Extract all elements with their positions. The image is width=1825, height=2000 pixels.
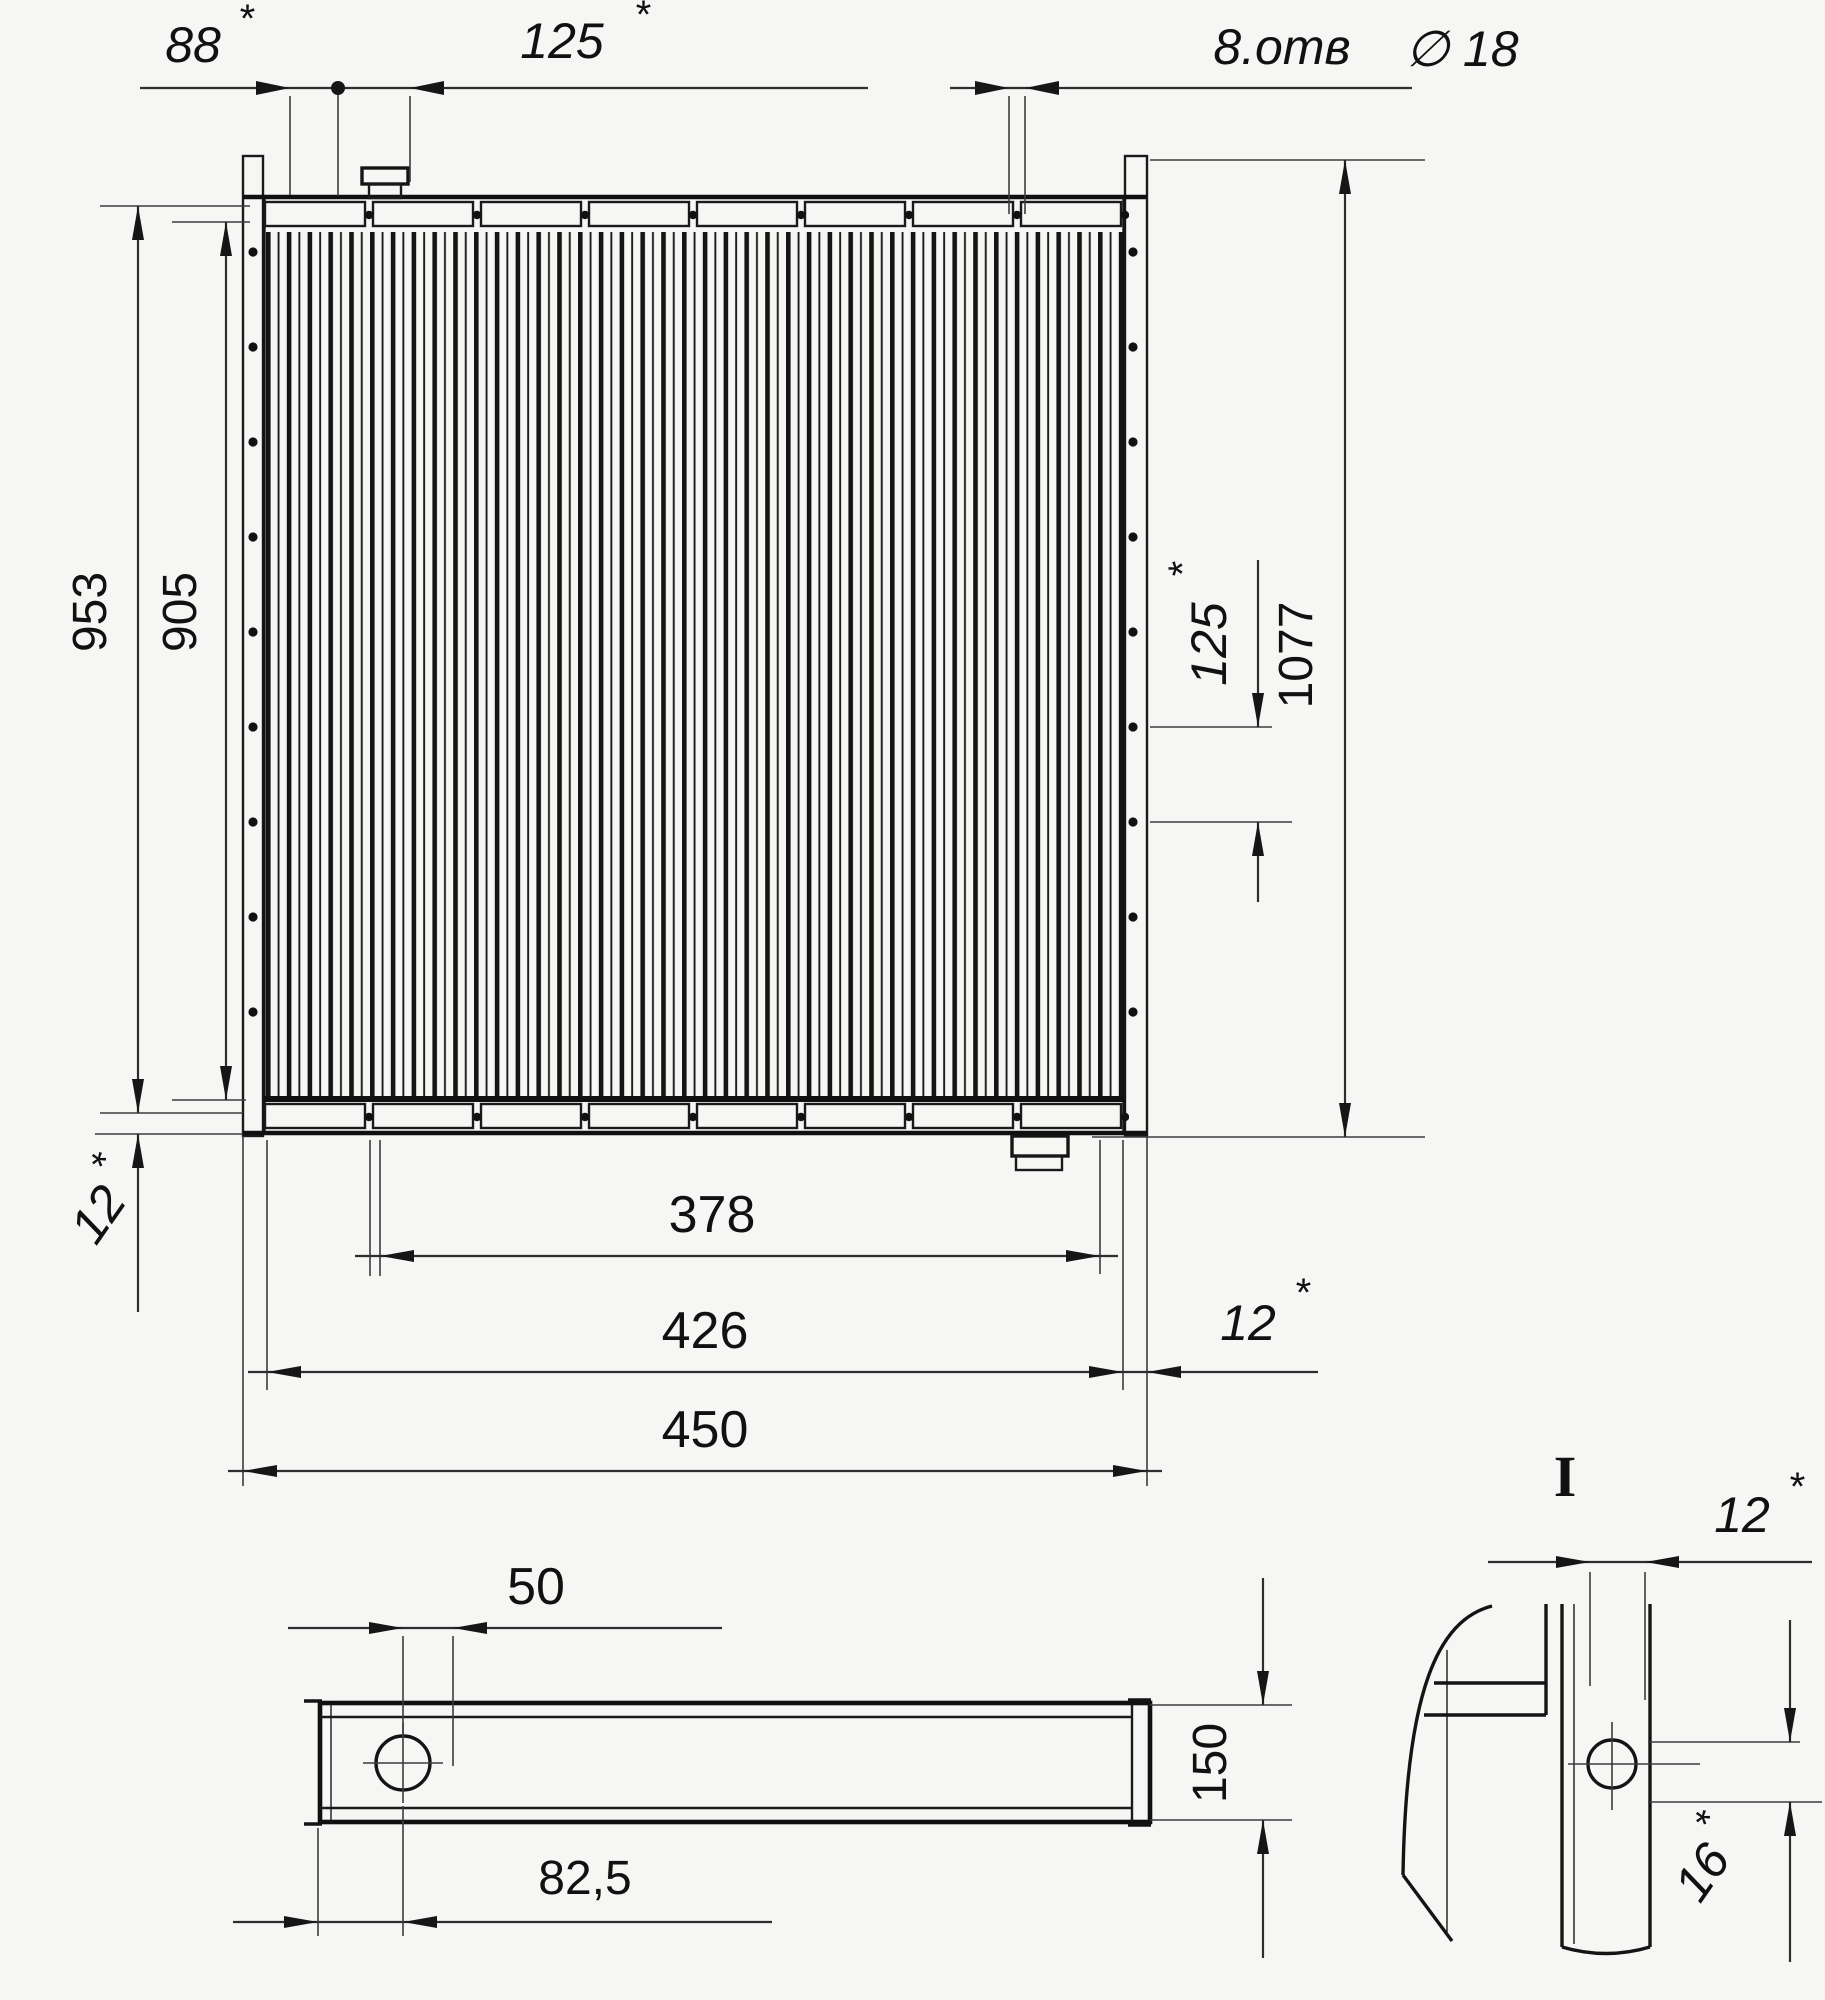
dim-top-row: 88 * 125 * 8.отв ∅ 18 (140, 0, 1519, 214)
top-band-holes (265, 202, 1133, 228)
mounting-holes-right (1128, 205, 1138, 1065)
front-view (243, 156, 1147, 1170)
drain-plug (1012, 1136, 1068, 1170)
dim-150: 150 (1150, 1578, 1292, 1958)
left-channel (243, 156, 263, 1136)
bottom-tank-band (265, 1104, 1133, 1130)
dim-450-label: 450 (662, 1401, 749, 1459)
radiator-fins (266, 232, 1124, 1096)
dim-88-label: 88 (165, 17, 221, 73)
mounting-holes-left (248, 205, 258, 1065)
dim-bottom-rows: 378 426 12 * 450 (228, 1136, 1318, 1486)
dim-12-right-star: * (1294, 1271, 1311, 1315)
drawing-sheet: 88 * 125 * 8.отв ∅ 18 953 905 12 * (0, 0, 1825, 2000)
dim-953-label: 953 (64, 572, 117, 652)
dim-left-column: 953 905 12 * (44, 206, 250, 1312)
holes-count-label: 8.отв (1213, 19, 1350, 75)
dim-16-detail-label: 16 (1663, 1833, 1741, 1911)
dim-125-top-label: 125 (520, 13, 604, 69)
detail-view-label: I (1554, 1444, 1577, 1509)
dim-150-label: 150 (1184, 1723, 1237, 1803)
dim-88-star: * (238, 0, 255, 41)
radiator-core (243, 197, 1147, 1133)
dim-905-label: 905 (154, 572, 207, 652)
bottom-view: 50 82,5 150 (233, 1558, 1292, 1958)
datum-dot (331, 81, 345, 95)
dim-12-right-label: 12 (1220, 1295, 1276, 1351)
dim-right-column: 125 * 1077 (1092, 160, 1425, 1137)
bottom-band-holes (265, 1104, 1133, 1130)
detail-view: I 12 * (1403, 1444, 1822, 1962)
dim-82-5-label: 82,5 (538, 1852, 631, 1905)
dim-125-top-star: * (634, 0, 651, 37)
filler-neck (362, 168, 408, 198)
dim-16-detail: 16 * (1648, 1620, 1822, 1962)
holes-diameter-label: ∅ 18 (1405, 21, 1518, 77)
section-geometry (1403, 1604, 1700, 1954)
dim-1077-label: 1077 (1270, 602, 1323, 709)
dim-426-label: 426 (662, 1302, 749, 1360)
dim-12-left-star: * (81, 1144, 127, 1183)
dim-12-detail-star: * (1788, 1465, 1805, 1509)
dim-378-label: 378 (669, 1186, 756, 1244)
dim-12-left-label: 12 (59, 1175, 137, 1253)
right-channel (1125, 156, 1147, 1136)
dim-16-detail-star: * (1685, 1802, 1731, 1841)
dim-125-right-label: 125 (1181, 602, 1237, 686)
dim-50-label: 50 (507, 1558, 565, 1616)
pipe-hole (363, 1723, 443, 1803)
top-tank-band (265, 202, 1133, 228)
dim-12-detail-label: 12 (1714, 1487, 1770, 1543)
channel-hole (1568, 1722, 1700, 1810)
dim-50: 50 (288, 1558, 722, 1766)
engineering-drawing: 88 * 125 * 8.отв ∅ 18 953 905 12 * (0, 0, 1825, 2000)
dim-125-right-star: * (1161, 561, 1205, 578)
